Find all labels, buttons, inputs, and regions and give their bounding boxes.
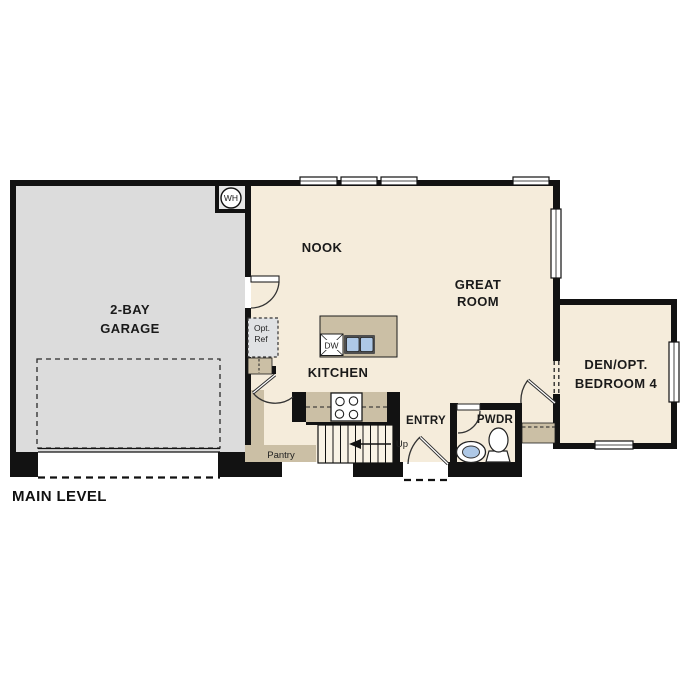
wall-bottom-below-pantry [245, 462, 282, 477]
mudroom-cabinet [248, 358, 272, 374]
powder-sink-icon [457, 442, 486, 463]
wall-garage-pier-left [10, 452, 38, 477]
wall-wh-closet-left [215, 186, 219, 213]
stove-icon [331, 393, 362, 421]
range-counter [292, 392, 400, 422]
wall-bottom-below-powder [448, 462, 522, 477]
floorplan-canvas: 2-BAY GARAGE NOOK GREAT ROOM KITCHEN DEN… [0, 0, 687, 687]
window-den-bottom [595, 441, 633, 449]
wall-powder-right [515, 403, 522, 462]
water-heater-label: WH [224, 193, 238, 203]
wall-top [10, 180, 560, 186]
dishwasher-label: DW [324, 341, 338, 351]
window-greatroom-right [551, 209, 561, 278]
pantry-shelf-vertical [251, 390, 264, 445]
wall-wh-closet-bottom [215, 209, 245, 213]
counter-end-right [387, 392, 400, 422]
wall-den-right-a [671, 299, 677, 342]
stairs-up-label: Up [396, 439, 408, 450]
wall-den-bottom-a [553, 443, 595, 449]
wall-den-bottom-b [633, 443, 677, 449]
kitchen-island [320, 316, 397, 357]
den-optional-opening [553, 361, 560, 394]
window-greatroom-top [513, 177, 549, 185]
wall-greatroom-right-b [553, 278, 560, 361]
den-floor [560, 305, 671, 443]
optional-fridge-line2: Ref [254, 334, 268, 344]
optional-fridge-line1: Opt. [254, 323, 270, 333]
greatroom-label-line2: ROOM [457, 294, 499, 309]
wall-bottom-left-of-door [353, 462, 403, 477]
counter-end-left [292, 392, 306, 422]
window-nook-3 [381, 177, 417, 185]
wall-garage-pier-right [218, 452, 247, 477]
wall-garage-house-upper [245, 186, 251, 277]
exterior-notch [522, 443, 553, 462]
den-label-line1: DEN/OPT. [584, 357, 647, 372]
window-nook-1 [300, 177, 337, 185]
pantry-label: Pantry [267, 450, 295, 461]
entry-label: ENTRY [406, 415, 446, 427]
garage-label-line2: GARAGE [100, 321, 159, 336]
wall-den-top [555, 299, 677, 305]
powder-label: PWDR [477, 414, 514, 426]
nook-label: NOOK [302, 240, 343, 255]
floorplan-drawing: 2-BAY GARAGE NOOK GREAT ROOM KITCHEN DEN… [0, 0, 687, 687]
wall-left [10, 180, 16, 477]
garage-floor [16, 186, 245, 452]
wall-den-right-b [671, 402, 677, 449]
garage-label-line1: 2-BAY [110, 302, 150, 317]
stairs [318, 425, 393, 463]
entry-closet [522, 423, 555, 443]
wall-greatroom-right-a [553, 186, 560, 209]
plan-title: MAIN LEVEL [12, 488, 107, 505]
window-den-right [669, 342, 679, 402]
greatroom-label-line1: GREAT [455, 277, 502, 292]
kitchen-label: KITCHEN [308, 365, 369, 380]
window-nook-2 [341, 177, 377, 185]
den-label-line2: BEDROOM 4 [575, 376, 658, 391]
island-sink-icon [344, 335, 375, 354]
